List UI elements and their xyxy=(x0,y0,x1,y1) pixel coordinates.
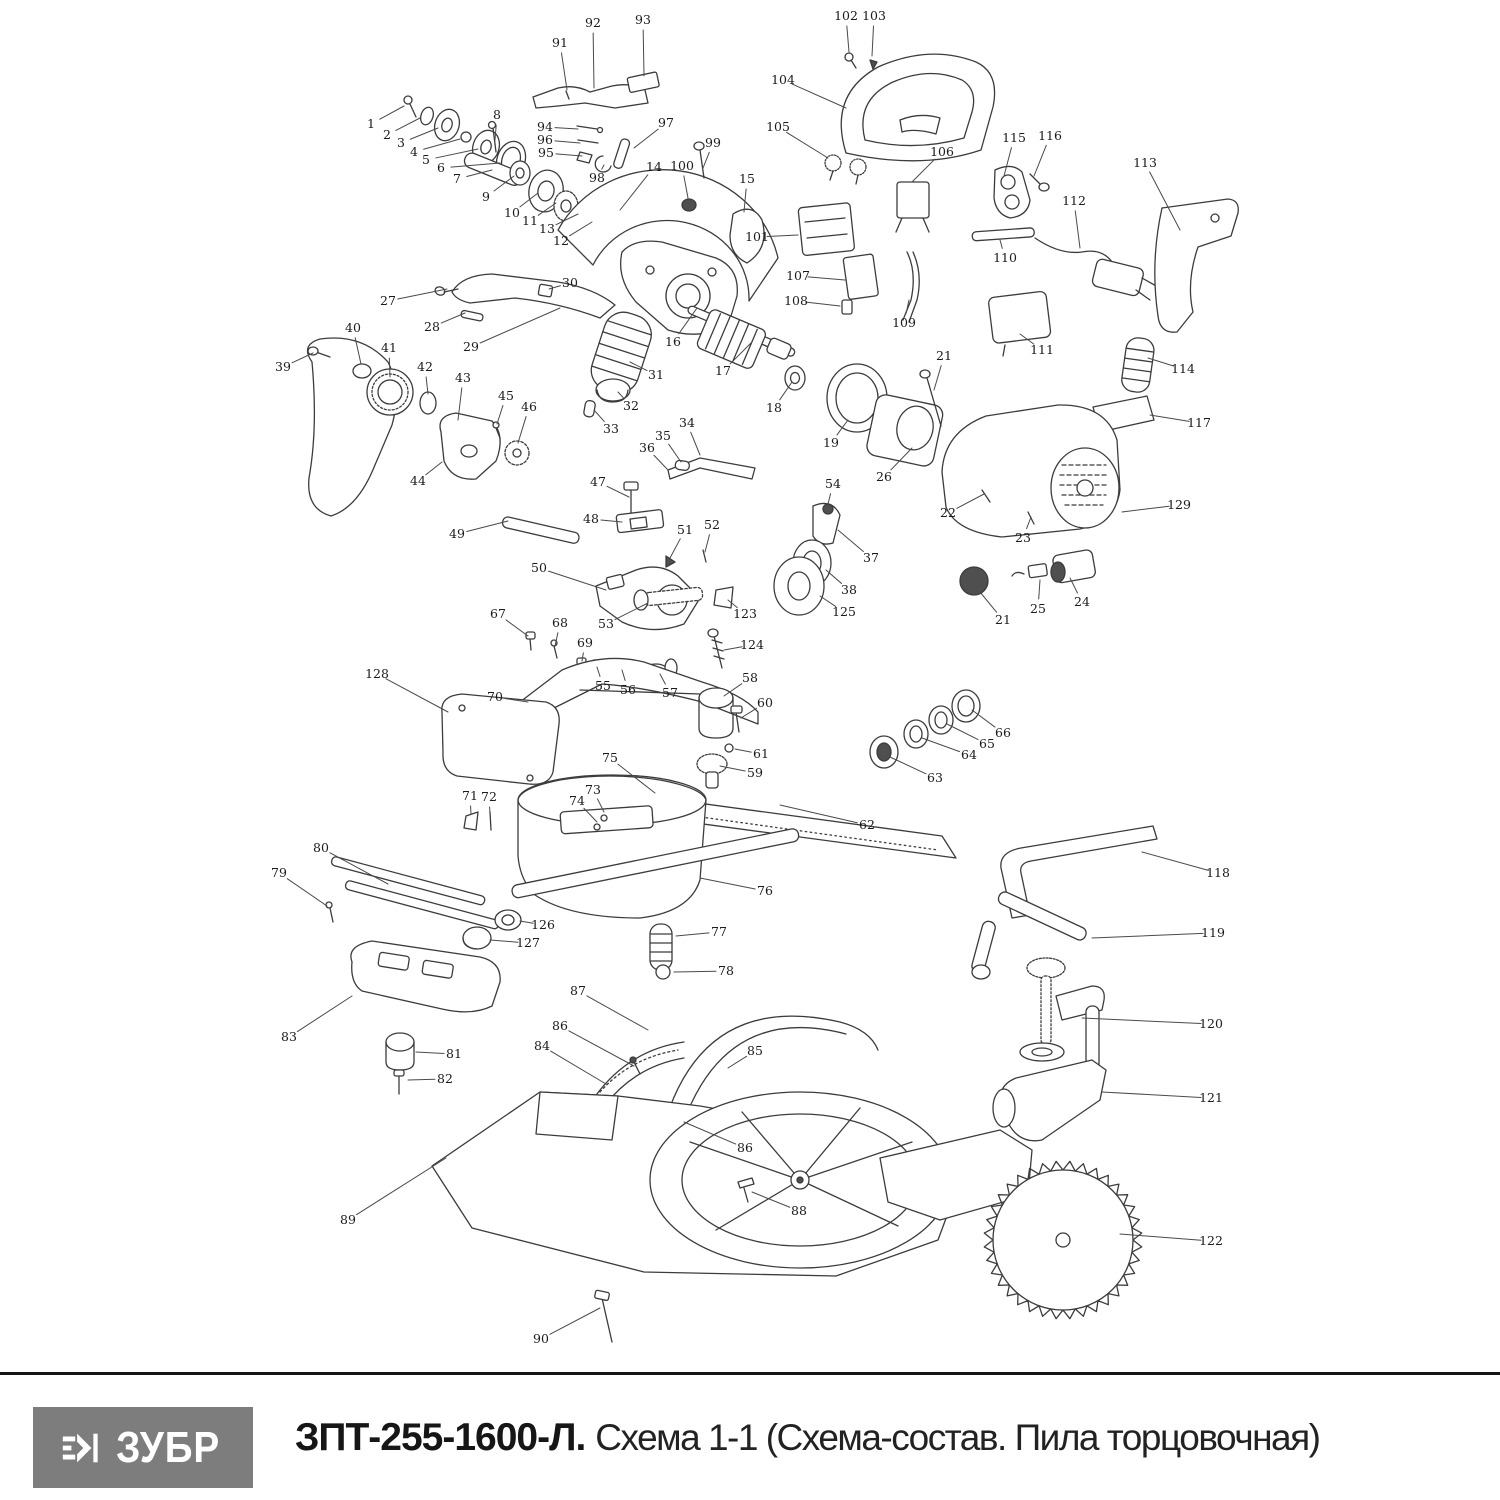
part-leader-85 xyxy=(728,1056,747,1068)
part-number-127: 127 xyxy=(516,935,540,950)
part-number-63: 63 xyxy=(927,770,943,785)
part-number-6: 6 xyxy=(437,160,445,175)
part-leader-87 xyxy=(587,996,648,1030)
part-number-89: 89 xyxy=(340,1212,356,1227)
part-leader-1 xyxy=(380,106,404,119)
part-leader-76 xyxy=(700,878,755,889)
part-leader-94 xyxy=(555,128,578,129)
part-leader-82 xyxy=(408,1079,435,1080)
part-leader-83 xyxy=(297,996,352,1032)
part-number-92: 92 xyxy=(585,15,601,30)
part-leader-106 xyxy=(912,159,935,182)
part-number-30: 30 xyxy=(562,275,578,290)
part-number-120: 120 xyxy=(1199,1016,1223,1031)
schematic-subtitle: Схема 1-1 (Схема-состав. Пила торцовочна… xyxy=(595,1417,1319,1459)
zubr-logo: ЗУБР xyxy=(33,1407,253,1488)
part-number-36: 36 xyxy=(639,440,655,455)
part-leader-36 xyxy=(654,455,668,470)
part-number-23: 23 xyxy=(1015,530,1031,545)
part-number-37: 37 xyxy=(863,550,879,565)
part-number-77: 77 xyxy=(711,924,727,939)
part-number-87: 87 xyxy=(570,983,586,998)
part-number-1: 1 xyxy=(367,116,375,131)
schematic-title: ЗПТ-255-1600-Л. Схема 1-1 (Схема-состав.… xyxy=(295,1375,1319,1500)
part-number-39: 39 xyxy=(275,359,291,374)
part-number-10: 10 xyxy=(504,205,520,220)
part-number-31: 31 xyxy=(648,367,664,382)
part-number-88: 88 xyxy=(791,1203,807,1218)
part-number-121: 121 xyxy=(1199,1090,1223,1105)
part-leader-18 xyxy=(780,382,792,400)
part-number-109: 109 xyxy=(892,315,916,330)
tools-group xyxy=(971,826,1157,1319)
part-number-76: 76 xyxy=(757,883,773,898)
part-number-33: 33 xyxy=(603,421,619,436)
part-number-102: 102 xyxy=(834,8,858,23)
part-number-54: 54 xyxy=(825,476,841,491)
part-number-86: 86 xyxy=(552,1018,568,1033)
part-number-99: 99 xyxy=(705,135,721,150)
part-number-14: 14 xyxy=(646,159,662,174)
part-number-45: 45 xyxy=(498,388,514,403)
main-handle-group xyxy=(798,53,1049,322)
part-number-48: 48 xyxy=(583,511,599,526)
part-number-98: 98 xyxy=(589,170,605,185)
part-leader-54 xyxy=(828,494,831,504)
part-leader-65 xyxy=(947,724,978,740)
part-number-9: 9 xyxy=(482,189,490,204)
part-number-86: 86 xyxy=(737,1140,753,1155)
part-leader-46 xyxy=(518,417,526,443)
part-leader-64 xyxy=(922,738,960,752)
part-leader-97 xyxy=(634,129,658,148)
part-leader-101 xyxy=(767,235,798,237)
part-leader-21 xyxy=(934,366,941,390)
part-number-15: 15 xyxy=(739,171,755,186)
part-number-105: 105 xyxy=(766,119,790,134)
part-leader-93 xyxy=(643,30,644,76)
part-leader-45 xyxy=(497,406,503,424)
part-leader-96 xyxy=(555,141,580,143)
model-number: ЗПТ-255-1600-Л. xyxy=(295,1416,585,1460)
part-leader-44 xyxy=(426,462,442,475)
part-leader-25 xyxy=(1039,580,1040,599)
part-leader-84 xyxy=(551,1051,606,1084)
part-number-116: 116 xyxy=(1038,128,1062,143)
part-number-51: 51 xyxy=(677,522,693,537)
part-number-61: 61 xyxy=(753,746,769,761)
part-number-16: 16 xyxy=(665,334,681,349)
part-leader-98 xyxy=(602,165,604,169)
part-number-64: 64 xyxy=(961,747,977,762)
part-number-124: 124 xyxy=(740,637,764,652)
part-number-50: 50 xyxy=(531,560,547,575)
part-number-106: 106 xyxy=(930,144,954,159)
part-number-22: 22 xyxy=(940,505,956,520)
part-number-95: 95 xyxy=(538,145,554,160)
part-leader-116 xyxy=(1034,145,1046,176)
part-number-93: 93 xyxy=(635,12,651,27)
part-number-11: 11 xyxy=(522,213,538,228)
part-number-8: 8 xyxy=(493,107,501,122)
part-leader-102 xyxy=(847,26,849,52)
part-number-118: 118 xyxy=(1206,865,1230,880)
part-leader-79 xyxy=(287,879,327,906)
part-leader-37 xyxy=(838,530,863,552)
exploded-diagram: 1234567891011131214151617181921262223129… xyxy=(0,0,1500,1372)
part-leader-103 xyxy=(872,26,874,56)
motor-housing-group xyxy=(942,405,1120,595)
part-number-19: 19 xyxy=(823,435,839,450)
part-number-53: 53 xyxy=(598,616,614,631)
part-number-91: 91 xyxy=(552,35,568,50)
part-leader-129 xyxy=(1122,506,1169,512)
part-leader-78 xyxy=(674,971,716,972)
part-leader-33 xyxy=(594,410,604,422)
part-leader-21 xyxy=(980,592,997,612)
part-number-34: 34 xyxy=(679,415,695,430)
part-leader-90 xyxy=(550,1308,600,1334)
part-number-73: 73 xyxy=(585,782,601,797)
part-number-110: 110 xyxy=(993,250,1017,265)
part-number-12: 12 xyxy=(553,233,569,248)
part-leader-119 xyxy=(1092,933,1203,938)
part-number-21: 21 xyxy=(936,348,952,363)
part-number-66: 66 xyxy=(995,725,1011,740)
part-leader-128 xyxy=(386,679,448,712)
part-leader-118 xyxy=(1142,852,1208,870)
zubr-logo-text: ЗУБР xyxy=(116,1423,220,1473)
part-number-90: 90 xyxy=(533,1331,549,1346)
part-number-38: 38 xyxy=(841,582,857,597)
part-number-82: 82 xyxy=(437,1071,453,1086)
part-number-75: 75 xyxy=(602,750,618,765)
part-leader-104 xyxy=(792,84,846,108)
part-leader-127 xyxy=(490,940,518,942)
part-number-26: 26 xyxy=(876,469,892,484)
part-number-69: 69 xyxy=(577,635,593,650)
part-number-46: 46 xyxy=(521,399,537,414)
part-leader-81 xyxy=(416,1052,444,1053)
part-number-125: 125 xyxy=(832,604,856,619)
part-number-56: 56 xyxy=(620,682,636,697)
part-number-21: 21 xyxy=(995,612,1011,627)
part-leader-112 xyxy=(1075,211,1080,248)
part-number-83: 83 xyxy=(281,1029,297,1044)
part-number-111: 111 xyxy=(1030,342,1054,357)
part-number-5: 5 xyxy=(422,152,430,167)
part-number-65: 65 xyxy=(979,736,995,751)
part-number-71: 71 xyxy=(462,788,478,803)
part-number-60: 60 xyxy=(757,695,773,710)
part-number-79: 79 xyxy=(271,865,287,880)
part-leader-67 xyxy=(506,620,528,636)
part-number-27: 27 xyxy=(380,293,396,308)
part-leader-117 xyxy=(1150,415,1189,421)
part-leader-89 xyxy=(356,1158,446,1215)
part-leader-29 xyxy=(480,308,560,343)
part-number-85: 85 xyxy=(747,1043,763,1058)
part-number-68: 68 xyxy=(552,615,568,630)
part-number-2: 2 xyxy=(383,127,391,142)
part-number-24: 24 xyxy=(1074,594,1090,609)
part-number-32: 32 xyxy=(623,398,639,413)
footer: ЗУБР ЗПТ-255-1600-Л. Схема 1-1 (Схема-со… xyxy=(0,1375,1500,1500)
part-number-74: 74 xyxy=(569,793,585,808)
part-number-114: 114 xyxy=(1171,361,1195,376)
part-leader-35 xyxy=(669,444,681,462)
part-leader-99 xyxy=(703,152,709,168)
part-number-104: 104 xyxy=(771,72,795,87)
part-number-101: 101 xyxy=(745,229,769,244)
part-leader-92 xyxy=(593,33,594,88)
part-number-97: 97 xyxy=(658,115,674,130)
part-leader-120 xyxy=(1082,1018,1201,1024)
part-leader-52 xyxy=(705,535,709,552)
part-number-44: 44 xyxy=(410,473,426,488)
part-number-122: 122 xyxy=(1199,1233,1223,1248)
part-number-43: 43 xyxy=(455,370,471,385)
part-number-67: 67 xyxy=(490,606,506,621)
part-number-70: 70 xyxy=(487,689,503,704)
part-leader-86 xyxy=(569,1031,634,1066)
part-number-58: 58 xyxy=(742,670,758,685)
part-leader-2 xyxy=(396,118,420,130)
zubr-logo-icon xyxy=(59,1427,101,1469)
part-number-72: 72 xyxy=(481,789,497,804)
part-leader-77 xyxy=(676,933,709,936)
part-number-35: 35 xyxy=(655,428,671,443)
part-number-41: 41 xyxy=(381,340,397,355)
part-number-107: 107 xyxy=(786,268,810,283)
part-leader-61 xyxy=(735,749,751,752)
part-number-100: 100 xyxy=(670,158,694,173)
part-number-62: 62 xyxy=(859,817,875,832)
base-group xyxy=(432,1092,1032,1342)
part-number-129: 129 xyxy=(1167,497,1191,512)
part-leader-38 xyxy=(826,570,841,583)
part-leader-63 xyxy=(890,757,926,774)
part-number-80: 80 xyxy=(313,840,329,855)
part-leader-50 xyxy=(549,571,606,590)
part-leader-105 xyxy=(786,132,828,158)
part-leader-34 xyxy=(691,432,700,455)
part-leader-28 xyxy=(441,313,465,323)
part-number-59: 59 xyxy=(747,765,763,780)
part-number-17: 17 xyxy=(715,363,731,378)
part-number-49: 49 xyxy=(449,526,465,541)
clamp-group xyxy=(326,856,521,1094)
part-leader-108 xyxy=(806,302,840,306)
part-number-84: 84 xyxy=(534,1038,550,1053)
schematic-page: 1234567891011131214151617181921262223129… xyxy=(0,0,1500,1500)
part-number-28: 28 xyxy=(424,319,440,334)
part-number-4: 4 xyxy=(410,144,418,159)
part-number-42: 42 xyxy=(417,359,433,374)
part-leader-95 xyxy=(556,154,582,156)
part-number-3: 3 xyxy=(397,135,405,150)
part-number-18: 18 xyxy=(766,400,782,415)
part-number-119: 119 xyxy=(1201,925,1225,940)
part-number-52: 52 xyxy=(704,517,720,532)
part-leader-91 xyxy=(561,53,567,90)
part-leader-107 xyxy=(808,277,845,280)
part-number-7: 7 xyxy=(453,171,461,186)
part-number-113: 113 xyxy=(1133,155,1157,170)
part-number-40: 40 xyxy=(345,320,361,335)
part-leader-49 xyxy=(467,521,508,532)
part-leader-51 xyxy=(670,539,680,558)
power-cord-group xyxy=(972,199,1238,432)
part-number-81: 81 xyxy=(446,1046,462,1061)
part-number-55: 55 xyxy=(595,678,611,693)
part-number-25: 25 xyxy=(1030,601,1046,616)
part-number-78: 78 xyxy=(718,963,734,978)
part-number-117: 117 xyxy=(1187,415,1211,430)
part-leader-41 xyxy=(389,358,390,377)
part-leader-110 xyxy=(1000,240,1002,248)
part-number-29: 29 xyxy=(463,339,479,354)
part-number-115: 115 xyxy=(1002,130,1026,145)
part-number-128: 128 xyxy=(365,666,389,681)
part-number-57: 57 xyxy=(662,685,678,700)
part-leader-121 xyxy=(1102,1092,1201,1097)
part-number-108: 108 xyxy=(784,293,808,308)
part-number-47: 47 xyxy=(590,474,606,489)
part-number-103: 103 xyxy=(862,8,886,23)
part-number-123: 123 xyxy=(733,606,757,621)
part-number-126: 126 xyxy=(531,917,555,932)
part-leader-3 xyxy=(410,128,438,139)
part-number-112: 112 xyxy=(1062,193,1086,208)
